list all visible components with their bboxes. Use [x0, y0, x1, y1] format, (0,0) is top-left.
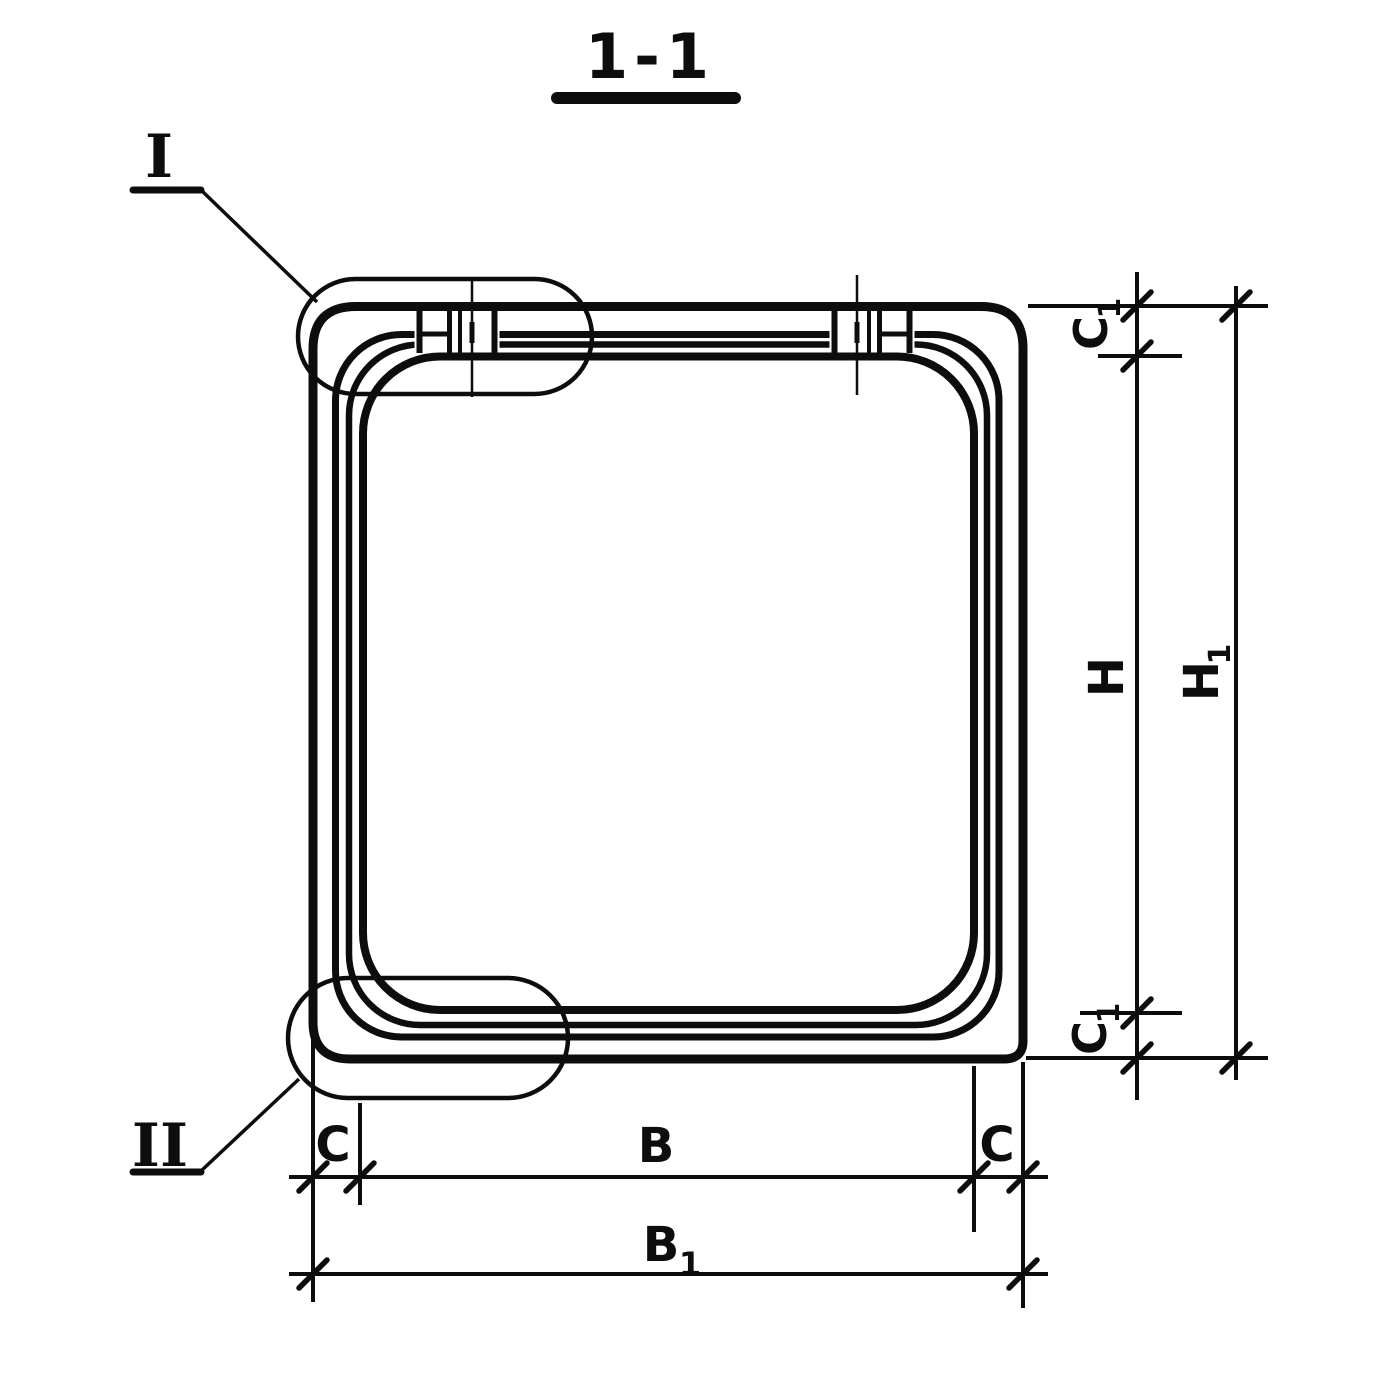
structure-outline	[313, 307, 1023, 1060]
dim-label-c1-bottom: C 1	[1063, 1003, 1127, 1055]
dim-label-base: C	[1063, 1021, 1117, 1055]
inner-contour	[363, 357, 974, 1011]
dim-label-c-right: C	[979, 1117, 1014, 1173]
dim-label-sub: 1	[1203, 644, 1238, 665]
dim-label-base: H	[1079, 657, 1135, 697]
drawing-title: 1-1	[557, 20, 735, 98]
detail-callout-I: I	[133, 122, 317, 302]
section-1-1-drawing: 1-1	[0, 0, 1374, 1379]
notch-groove-area	[415, 311, 500, 352]
vertical-dimensions	[1026, 272, 1268, 1100]
dim-label-sub: 1	[1092, 1003, 1127, 1024]
top-joint-notch-left	[415, 277, 500, 397]
detail-marker-I: I	[145, 122, 173, 192]
dim-label-h1: H 1	[1174, 644, 1238, 702]
dim-label-base: H	[1174, 661, 1230, 701]
wall-contour-2	[336, 335, 1000, 1038]
detail-callout-II: II	[132, 1079, 299, 1181]
notch-groove-area	[830, 311, 915, 352]
title-text: 1-1	[585, 20, 715, 93]
dim-label-base: B	[643, 1217, 680, 1273]
top-joint-notch-right	[830, 275, 915, 395]
leader-line	[201, 190, 317, 302]
dim-label-h: H	[1079, 657, 1135, 697]
dim-label-sub: 1	[1093, 298, 1128, 319]
dim-label-sub: 1	[679, 1245, 701, 1283]
dim-label-c-left: C	[315, 1117, 350, 1173]
dim-label-base: C	[1064, 316, 1118, 350]
outer-contour	[313, 307, 1023, 1060]
wall-contour-3	[349, 345, 987, 1026]
drawing-sheet: 1-1	[0, 0, 1374, 1379]
leader-line	[201, 1079, 299, 1171]
dim-label-b: B	[638, 1118, 675, 1174]
